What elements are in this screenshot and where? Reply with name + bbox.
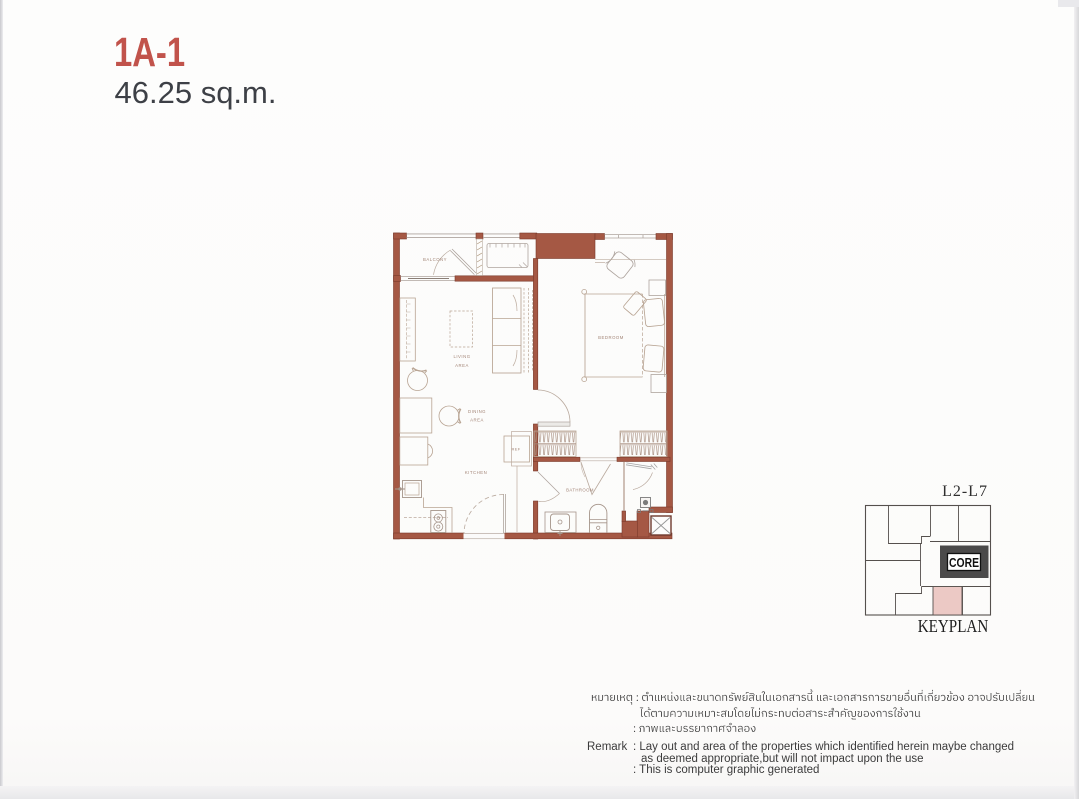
svg-text:BALCONY: BALCONY xyxy=(423,257,447,262)
svg-text:KEYPLAN: KEYPLAN xyxy=(918,616,989,636)
svg-text:CORE: CORE xyxy=(949,556,979,570)
svg-text:BEDROOM: BEDROOM xyxy=(598,335,624,340)
svg-text:KITCHEN: KITCHEN xyxy=(465,470,487,475)
svg-text:REF: REF xyxy=(512,447,521,452)
svg-text:DINING: DINING xyxy=(468,409,486,414)
svg-text:AREA: AREA xyxy=(455,363,469,368)
svg-text:L2-L7: L2-L7 xyxy=(942,483,988,500)
svg-text:BATHROOM: BATHROOM xyxy=(566,488,594,493)
svg-text:AREA: AREA xyxy=(470,418,484,423)
svg-text:LIVING: LIVING xyxy=(453,354,470,359)
